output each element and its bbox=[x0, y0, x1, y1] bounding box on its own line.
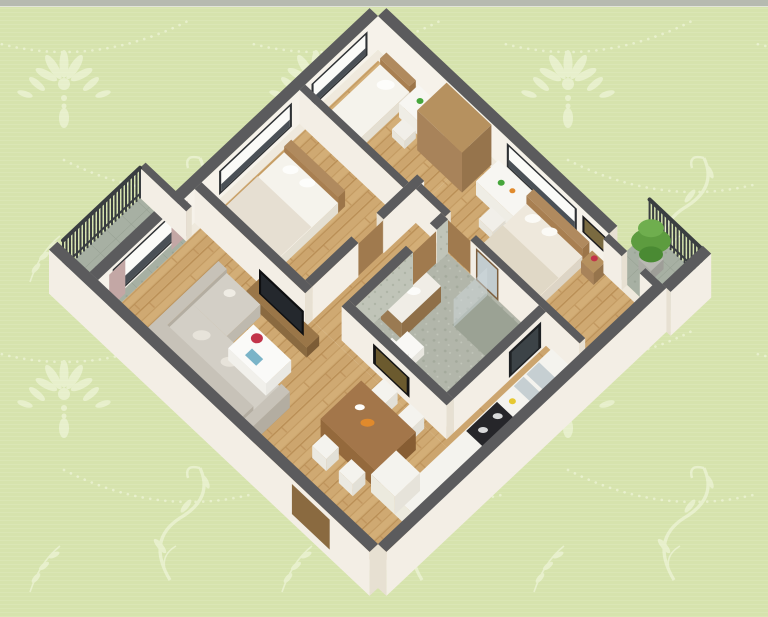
plant-foliage-2 bbox=[638, 219, 664, 237]
sofa-cushion-1 bbox=[193, 330, 211, 340]
bed1-pillow-1 bbox=[283, 165, 299, 174]
plant-foliage-3 bbox=[639, 246, 663, 262]
bed2-pillow bbox=[377, 80, 395, 90]
desk-master-item-orange bbox=[509, 188, 515, 193]
sofa-throw-pillow bbox=[224, 289, 236, 297]
top-edge-highlight bbox=[0, 6, 768, 7]
nightstand-flowers bbox=[591, 255, 598, 261]
stove-burner-1 bbox=[493, 413, 503, 419]
bed-master-pillow-1 bbox=[525, 214, 541, 223]
desk-master-item-green bbox=[498, 180, 505, 186]
bed-master-pillow-2 bbox=[542, 227, 558, 236]
flower-vase bbox=[251, 333, 263, 343]
stove-burner-2 bbox=[478, 427, 488, 433]
fruit-bowl bbox=[361, 419, 375, 427]
kettle bbox=[509, 398, 516, 404]
bed1-pillow-2 bbox=[299, 178, 315, 187]
floor-plan-3d-render bbox=[0, 0, 768, 617]
top-edge-strip bbox=[0, 0, 768, 6]
floor-plan-page bbox=[0, 0, 768, 617]
desk2-plant bbox=[417, 98, 424, 104]
plate bbox=[355, 404, 365, 410]
